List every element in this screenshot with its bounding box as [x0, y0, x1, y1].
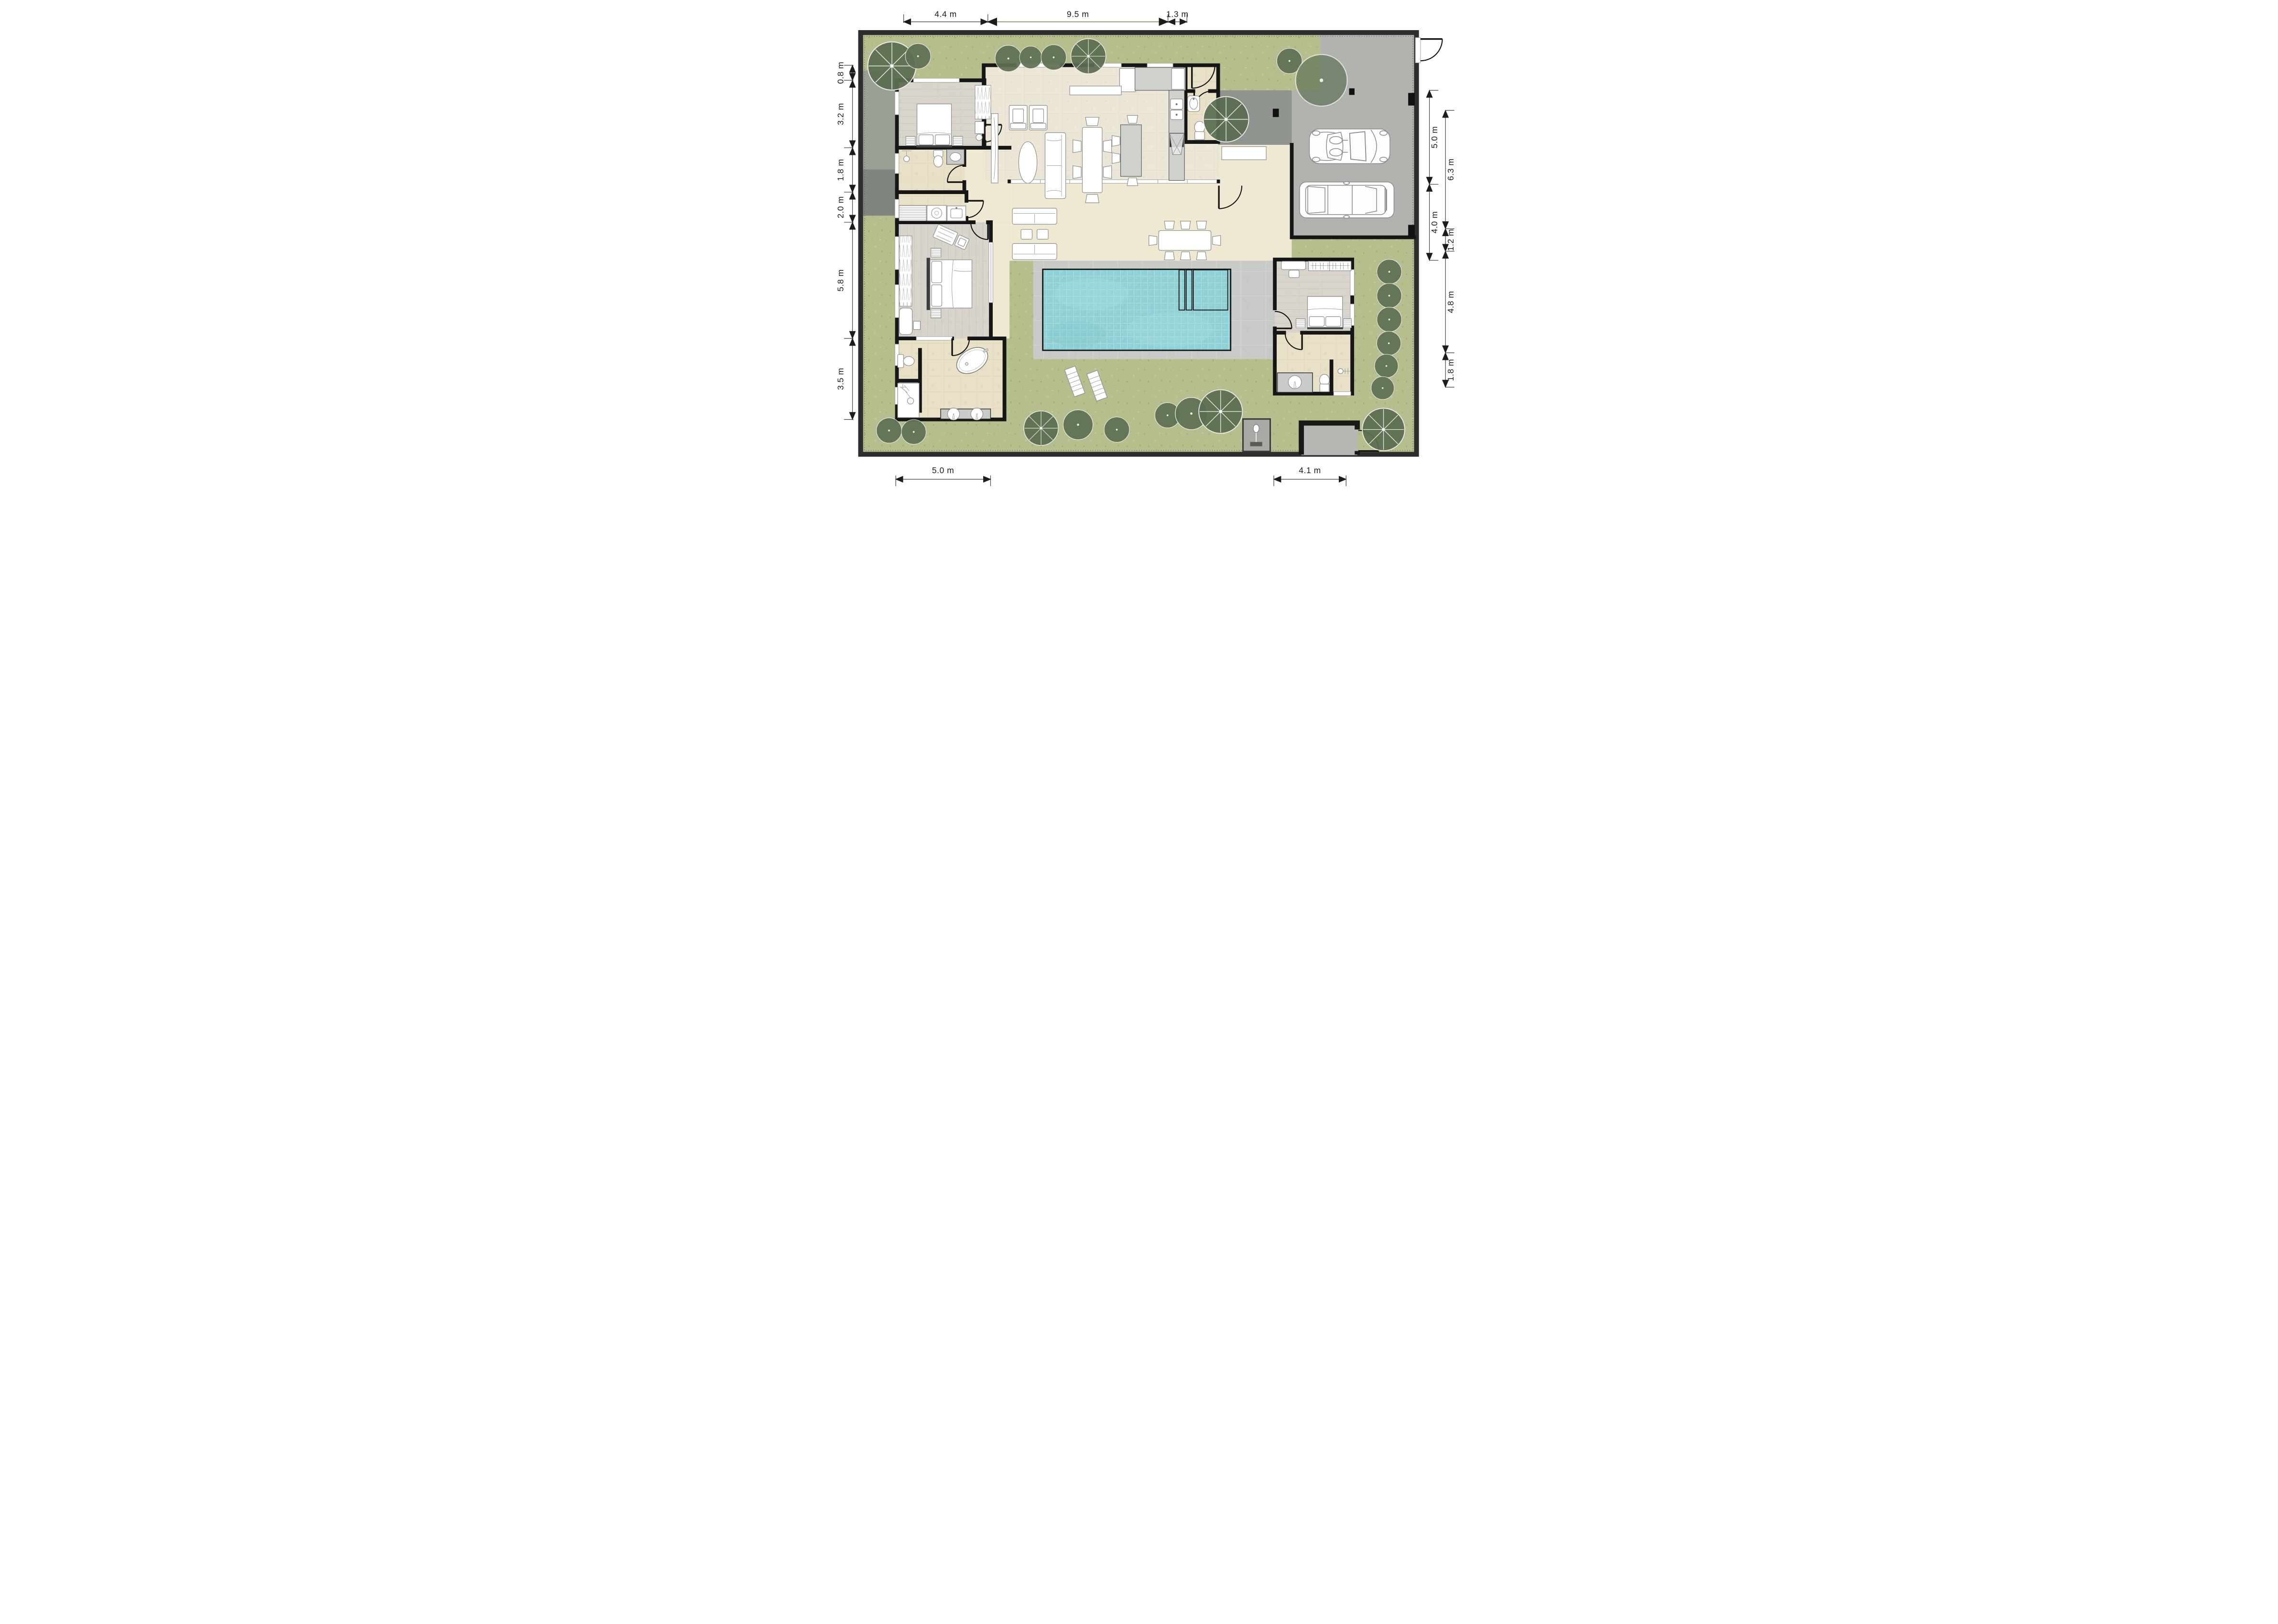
dim-label: 0.8 m [836, 62, 846, 84]
wardrobe [1309, 261, 1351, 271]
tree-icon [1024, 411, 1058, 445]
tree-icon [1375, 354, 1398, 378]
suv-car-icon [1300, 182, 1394, 218]
sink-icon [950, 152, 961, 161]
dim-label: 2.0 m [836, 196, 846, 218]
window [895, 92, 899, 115]
tree-icon [1199, 390, 1242, 433]
dim-label: 1.8 m [1446, 359, 1455, 381]
outdoor-sofa [1012, 208, 1057, 225]
coffee-table [1019, 141, 1037, 183]
toilet-icon [1320, 374, 1329, 392]
window [895, 199, 899, 218]
shower-icon [898, 383, 919, 418]
tree-icon [1377, 331, 1400, 355]
nightstand [953, 136, 963, 146]
tree-icon [1377, 283, 1402, 308]
outdoor-table [1159, 230, 1211, 250]
entry-bench [1222, 147, 1266, 160]
dim-label: 4.8 m [1446, 291, 1455, 314]
headboard [927, 258, 930, 310]
outdoor-shower [1243, 419, 1270, 452]
ottoman [1037, 229, 1048, 239]
dim-label: 4.1 m [1299, 466, 1321, 475]
tree-icon [1104, 417, 1129, 443]
laundry [899, 206, 966, 221]
dim-label: 1.2 m [1446, 229, 1455, 251]
patio-east-strip [991, 222, 1009, 338]
bed [916, 104, 952, 148]
dining-table [1082, 127, 1102, 193]
tree-icon [1204, 97, 1249, 142]
floor-plan: 4.4 m 9.5 m 1.3 m 0.8 m 3.2 m 1.8 m 2.0 … [797, 0, 1481, 487]
nightstand [1344, 319, 1352, 328]
fridge [1172, 68, 1184, 89]
tree-icon [1362, 408, 1405, 451]
dim-label: 5.0 m [932, 466, 955, 475]
toilet-icon [1194, 121, 1205, 140]
kitchen-tall-cabinet [1119, 68, 1136, 92]
nightstand [1296, 319, 1305, 328]
side-yard-slab-dark [863, 170, 897, 216]
dim-label: 1.3 m [1166, 9, 1189, 19]
fence-post-icon [1408, 225, 1415, 237]
louver-cabinet [899, 206, 926, 221]
side-table [913, 321, 920, 329]
entry-vestibule-floor [1186, 65, 1218, 91]
column-icon [1273, 108, 1279, 117]
armchair [1009, 106, 1027, 130]
dim-label: 1.8 m [836, 159, 846, 181]
sideboard [1070, 86, 1121, 95]
desk [1281, 261, 1306, 270]
tree-icon [1063, 410, 1093, 440]
sliding-glass-door [989, 242, 993, 303]
window [895, 285, 899, 318]
shower-head-icon [1253, 424, 1259, 433]
outdoor-sofa [1012, 243, 1057, 260]
floor-plan-page: 4.4 m 9.5 m 1.3 m 0.8 m 3.2 m 1.8 m 2.0 … [797, 0, 1481, 487]
bed [1307, 296, 1343, 329]
dim-label: 4.4 m [934, 9, 957, 19]
sofa [1045, 133, 1065, 199]
window [895, 237, 899, 270]
column-icon [1349, 88, 1355, 95]
tree-icon [877, 418, 902, 443]
tree-icon [901, 420, 926, 444]
toilet-icon [933, 150, 943, 167]
dim-label: 9.5 m [1067, 9, 1089, 19]
window [916, 336, 952, 340]
nightstand [931, 248, 941, 257]
stool [976, 134, 982, 141]
window [1334, 391, 1351, 395]
nightstand [906, 136, 915, 146]
kitchen-island [1121, 125, 1142, 176]
chaise-bench [900, 308, 912, 335]
tree-icon [1071, 39, 1106, 74]
tree-icon [905, 43, 931, 69]
dim-label: 5.0 m [1430, 126, 1439, 148]
tree-icon [1296, 54, 1347, 106]
window [1350, 270, 1354, 295]
tree-icon [1041, 45, 1066, 70]
ottoman [1021, 229, 1032, 239]
bed [927, 258, 972, 310]
armchair [1029, 106, 1047, 130]
dim-label: 5.8 m [836, 269, 846, 292]
laundry-sink [947, 206, 966, 221]
vanity [1278, 373, 1313, 392]
swimming-pool [1043, 269, 1231, 350]
wardrobe [975, 86, 991, 119]
dim-label: 6.3 m [1446, 158, 1455, 180]
closet [900, 236, 912, 306]
dim-label: 3.2 m [836, 103, 846, 125]
fence-post-icon [1408, 93, 1415, 105]
nightstand [931, 309, 941, 318]
dim-label: 4.0 m [1430, 211, 1439, 233]
dim-label: 3.5 m [836, 368, 846, 390]
washing-machine-icon [927, 206, 947, 221]
window [913, 78, 959, 82]
kitchen-sink [1171, 99, 1183, 119]
tree-icon [1377, 307, 1402, 332]
desk [975, 121, 984, 133]
window [1147, 63, 1173, 67]
sink-icon [1188, 96, 1200, 111]
tree-icon [1377, 260, 1402, 284]
living-glass-wall [1011, 180, 1217, 184]
double-vanity [941, 408, 990, 420]
chair [1289, 270, 1300, 278]
window [895, 153, 899, 173]
convertible-car-icon [1309, 129, 1390, 164]
tree-icon [1020, 46, 1042, 69]
tree-icon [995, 45, 1021, 72]
tree-icon [1371, 377, 1394, 400]
